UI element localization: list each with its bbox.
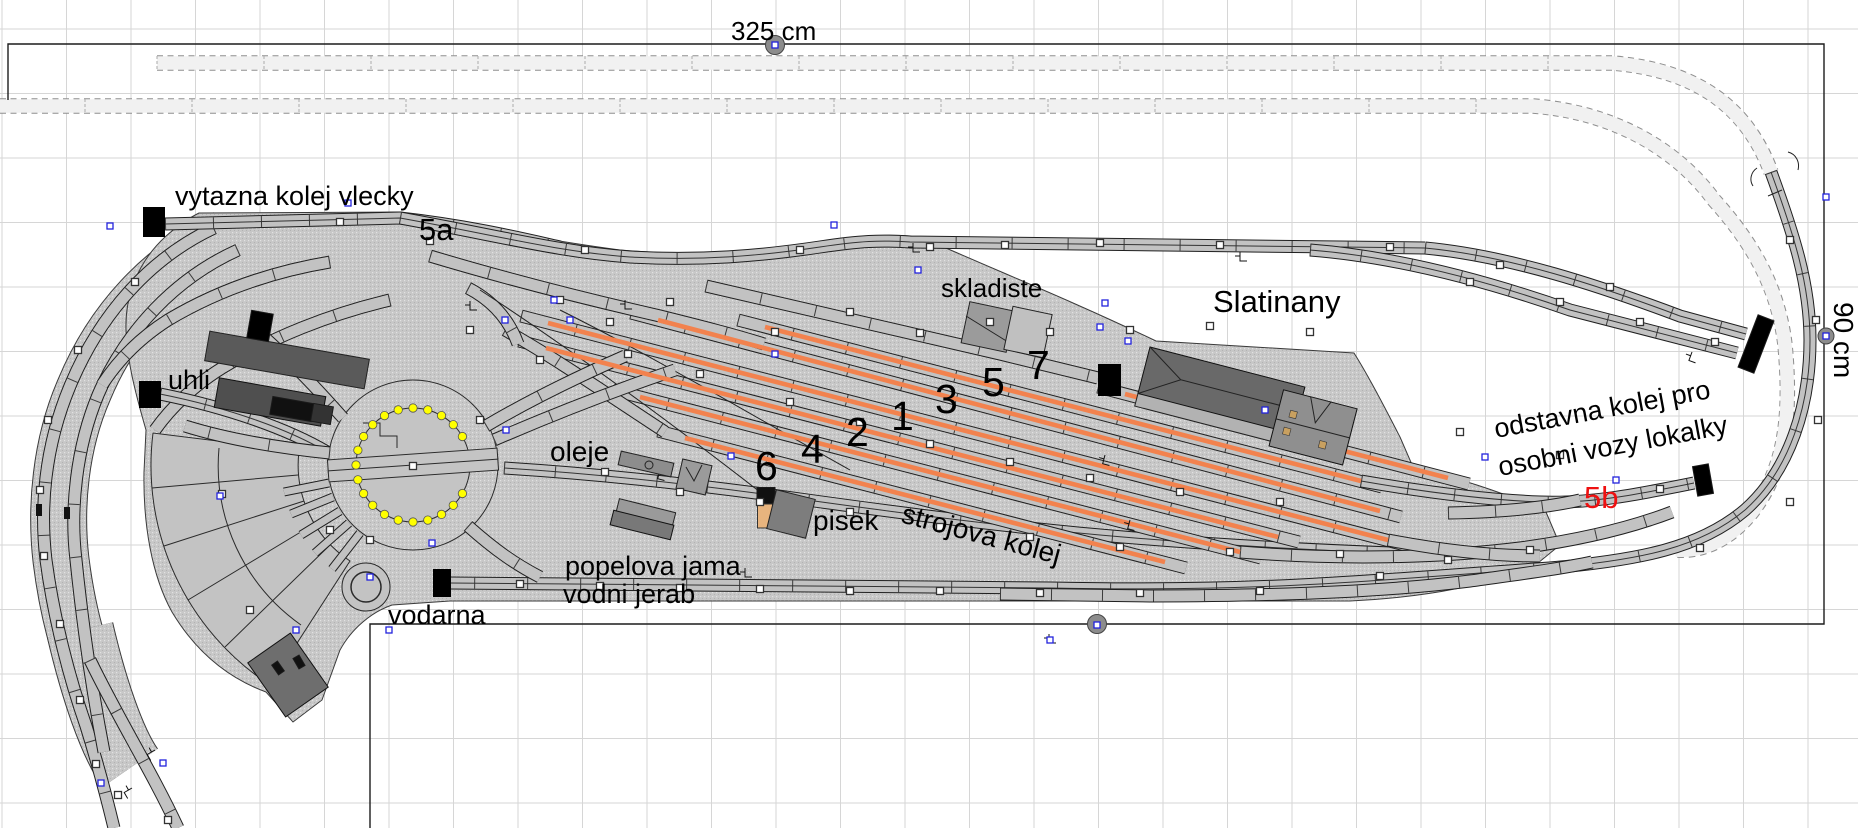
svg-text:325 cm: 325 cm: [731, 16, 816, 46]
svg-text:90 cm: 90 cm: [1828, 302, 1858, 378]
svg-text:7: 7: [1027, 342, 1050, 388]
svg-text:Slatinany: Slatinany: [1213, 284, 1341, 319]
svg-text:6: 6: [755, 443, 778, 489]
svg-text:pisek: pisek: [813, 505, 879, 536]
svg-text:5b: 5b: [1584, 480, 1618, 515]
svg-text:oleje: oleje: [550, 436, 609, 467]
svg-text:2: 2: [846, 409, 869, 455]
svg-text:uhli: uhli: [168, 365, 210, 395]
svg-text:5a: 5a: [419, 212, 454, 247]
svg-text:vodarna: vodarna: [388, 600, 487, 630]
svg-text:4: 4: [801, 426, 824, 472]
svg-text:vodni jerab: vodni jerab: [563, 579, 695, 609]
svg-text:1: 1: [891, 393, 914, 439]
svg-text:5: 5: [982, 359, 1005, 405]
svg-text:skladiste: skladiste: [941, 273, 1042, 303]
svg-text:popelova jama: popelova jama: [565, 551, 742, 581]
svg-text:3: 3: [935, 376, 958, 422]
svg-text:vytazna kolej vlecky: vytazna kolej vlecky: [175, 181, 414, 211]
